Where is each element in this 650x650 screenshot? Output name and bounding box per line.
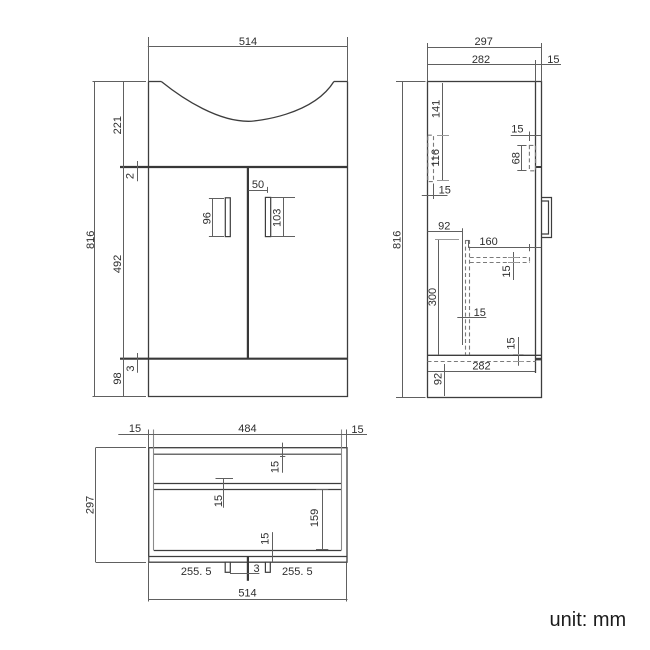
svg-text:116: 116 (430, 149, 442, 167)
svg-text:15: 15 (439, 185, 451, 197)
svg-text:98: 98 (112, 372, 124, 384)
svg-text:282: 282 (472, 54, 490, 66)
svg-text:68: 68 (510, 152, 522, 164)
svg-text:160: 160 (479, 236, 497, 248)
svg-text:3: 3 (254, 563, 260, 575)
svg-text:3: 3 (125, 365, 137, 371)
svg-text:15: 15 (213, 495, 225, 507)
svg-text:92: 92 (438, 221, 450, 233)
svg-text:15: 15 (501, 265, 513, 277)
svg-text:159: 159 (309, 509, 321, 527)
svg-text:514: 514 (238, 588, 256, 600)
svg-text:255. 5: 255. 5 (181, 566, 212, 578)
svg-text:141: 141 (431, 100, 443, 118)
svg-text:221: 221 (112, 116, 124, 134)
svg-text:15: 15 (260, 533, 272, 545)
svg-text:92: 92 (433, 373, 445, 385)
svg-text:484: 484 (238, 423, 256, 435)
svg-text:103: 103 (272, 209, 284, 227)
svg-text:15: 15 (505, 337, 517, 349)
svg-text:297: 297 (85, 496, 97, 514)
svg-text:816: 816 (85, 231, 97, 249)
svg-text:15: 15 (547, 54, 559, 66)
svg-text:300: 300 (427, 288, 439, 306)
svg-text:unit: mm: unit: mm (550, 609, 627, 631)
svg-text:50: 50 (252, 179, 264, 191)
svg-text:255. 5: 255. 5 (282, 566, 313, 578)
svg-text:282: 282 (472, 361, 490, 373)
svg-text:514: 514 (239, 36, 257, 48)
svg-text:96: 96 (201, 212, 213, 224)
svg-text:816: 816 (391, 231, 403, 249)
svg-text:15: 15 (129, 423, 141, 435)
svg-text:15: 15 (474, 307, 486, 319)
svg-text:15: 15 (270, 461, 282, 473)
svg-text:15: 15 (511, 124, 523, 136)
svg-text:297: 297 (475, 36, 493, 48)
svg-text:492: 492 (112, 255, 124, 273)
svg-text:15: 15 (351, 424, 363, 436)
svg-text:2: 2 (125, 173, 137, 179)
